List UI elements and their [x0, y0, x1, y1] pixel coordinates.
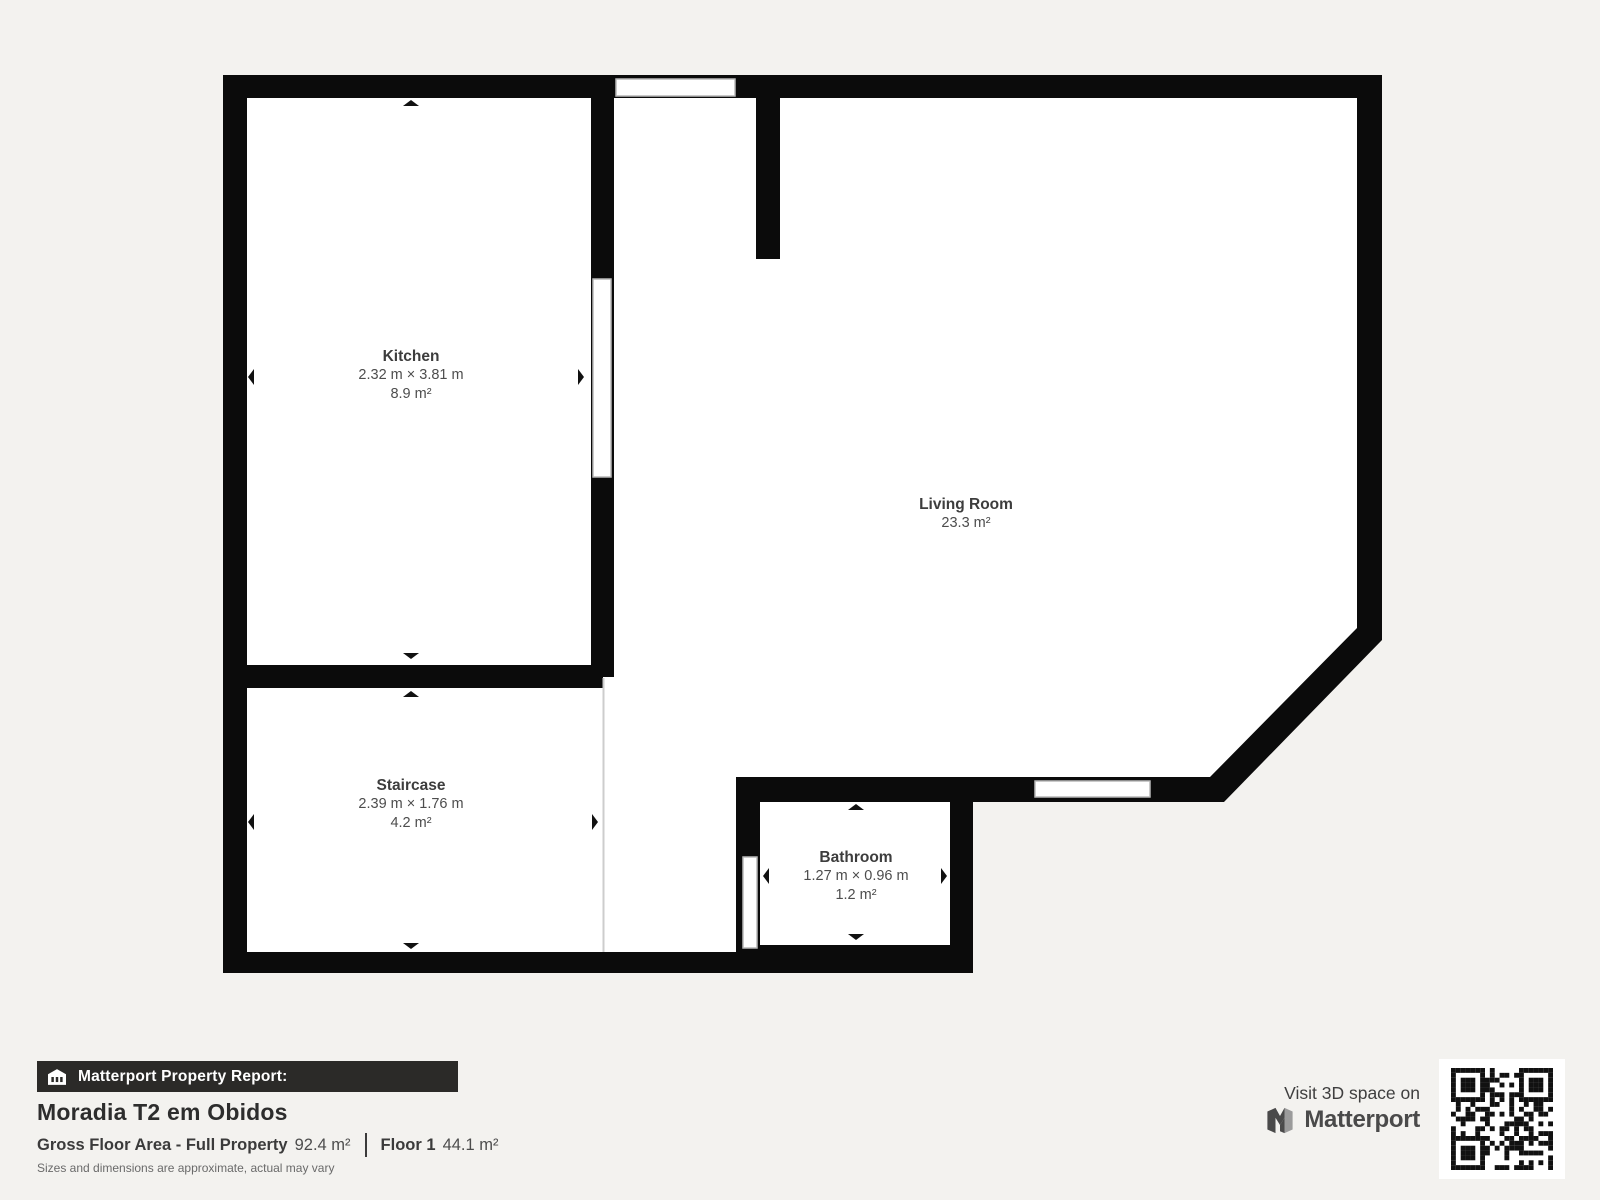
bathroom-door-opening: [743, 857, 757, 948]
staircase-label: Staircase 2.39 m × 1.76 m 4.2 m²: [358, 776, 463, 833]
floorplan-drawing: [0, 0, 1600, 1200]
living-room-name: Living Room: [919, 495, 1013, 514]
bathroom-measure-left-arrow-icon: [763, 868, 769, 884]
bathroom-area: 1.2 m²: [803, 886, 908, 905]
report-header-bar: Matterport Property Report:: [37, 1061, 458, 1092]
gross-area-label: Gross Floor Area - Full Property: [37, 1136, 288, 1155]
matterport-wordmark: Matterport: [1304, 1106, 1420, 1134]
staircase-measure-up-arrow-icon: [403, 691, 419, 697]
qr-code: [1439, 1059, 1565, 1179]
staircase-measure-left-arrow-icon: [248, 814, 254, 830]
kitchen-label: Kitchen 2.32 m × 3.81 m 8.9 m²: [358, 347, 463, 404]
living-room-wall-stub: [756, 75, 780, 259]
kitchen-dimensions: 2.32 m × 3.81 m: [358, 366, 463, 385]
matterport-logo-icon: [1265, 1107, 1295, 1134]
building-icon: [48, 1069, 66, 1085]
kitchen-measure-up-arrow-icon: [403, 100, 419, 106]
kitchen-name: Kitchen: [358, 347, 463, 366]
stats-divider: [365, 1133, 367, 1157]
disclaimer-text: Sizes and dimensions are approximate, ac…: [37, 1161, 334, 1175]
floor-value: 44.1 m²: [443, 1136, 499, 1155]
living-room-bottom-window: [1035, 781, 1150, 797]
top-wall-window: [616, 79, 735, 96]
property-report-page: Kitchen 2.32 m × 3.81 m 8.9 m² Living Ro…: [0, 0, 1600, 1200]
bathroom-measure-up-arrow-icon: [848, 804, 864, 810]
staircase-name: Staircase: [358, 776, 463, 795]
matterport-brand: Matterport: [1100, 1106, 1420, 1134]
bathroom-label: Bathroom 1.27 m × 0.96 m 1.2 m²: [803, 848, 908, 905]
kitchen-staircase-divider-wall: [247, 665, 603, 688]
staircase-dimensions: 2.39 m × 1.76 m: [358, 795, 463, 814]
bathroom-measure-down-arrow-icon: [848, 934, 864, 940]
qr-code-pattern: [1451, 1068, 1553, 1170]
kitchen-measure-right-arrow-icon: [578, 369, 584, 385]
area-stats-row: Gross Floor Area - Full Property 92.4 m²…: [37, 1133, 499, 1157]
property-title: Moradia T2 em Obidos: [37, 1099, 288, 1126]
staircase-measure-right-arrow-icon: [592, 814, 598, 830]
gross-area-value: 92.4 m²: [295, 1136, 351, 1155]
bathroom-measure-right-arrow-icon: [941, 868, 947, 884]
kitchen-wall-window: [593, 279, 611, 477]
bathroom-dimensions: 1.27 m × 0.96 m: [803, 867, 908, 886]
report-bar-label: Matterport Property Report:: [78, 1068, 288, 1086]
living-room-area: 23.3 m²: [919, 514, 1013, 533]
floor-label: Floor 1: [381, 1136, 436, 1155]
bathroom-name: Bathroom: [803, 848, 908, 867]
living-room-label: Living Room 23.3 m²: [919, 495, 1013, 533]
visit-3d-text: Visit 3D space on: [1100, 1083, 1420, 1104]
kitchen-measure-left-arrow-icon: [248, 369, 254, 385]
staircase-area: 4.2 m²: [358, 814, 463, 833]
kitchen-area: 8.9 m²: [358, 385, 463, 404]
kitchen-measure-down-arrow-icon: [403, 653, 419, 659]
staircase-measure-down-arrow-icon: [403, 943, 419, 949]
